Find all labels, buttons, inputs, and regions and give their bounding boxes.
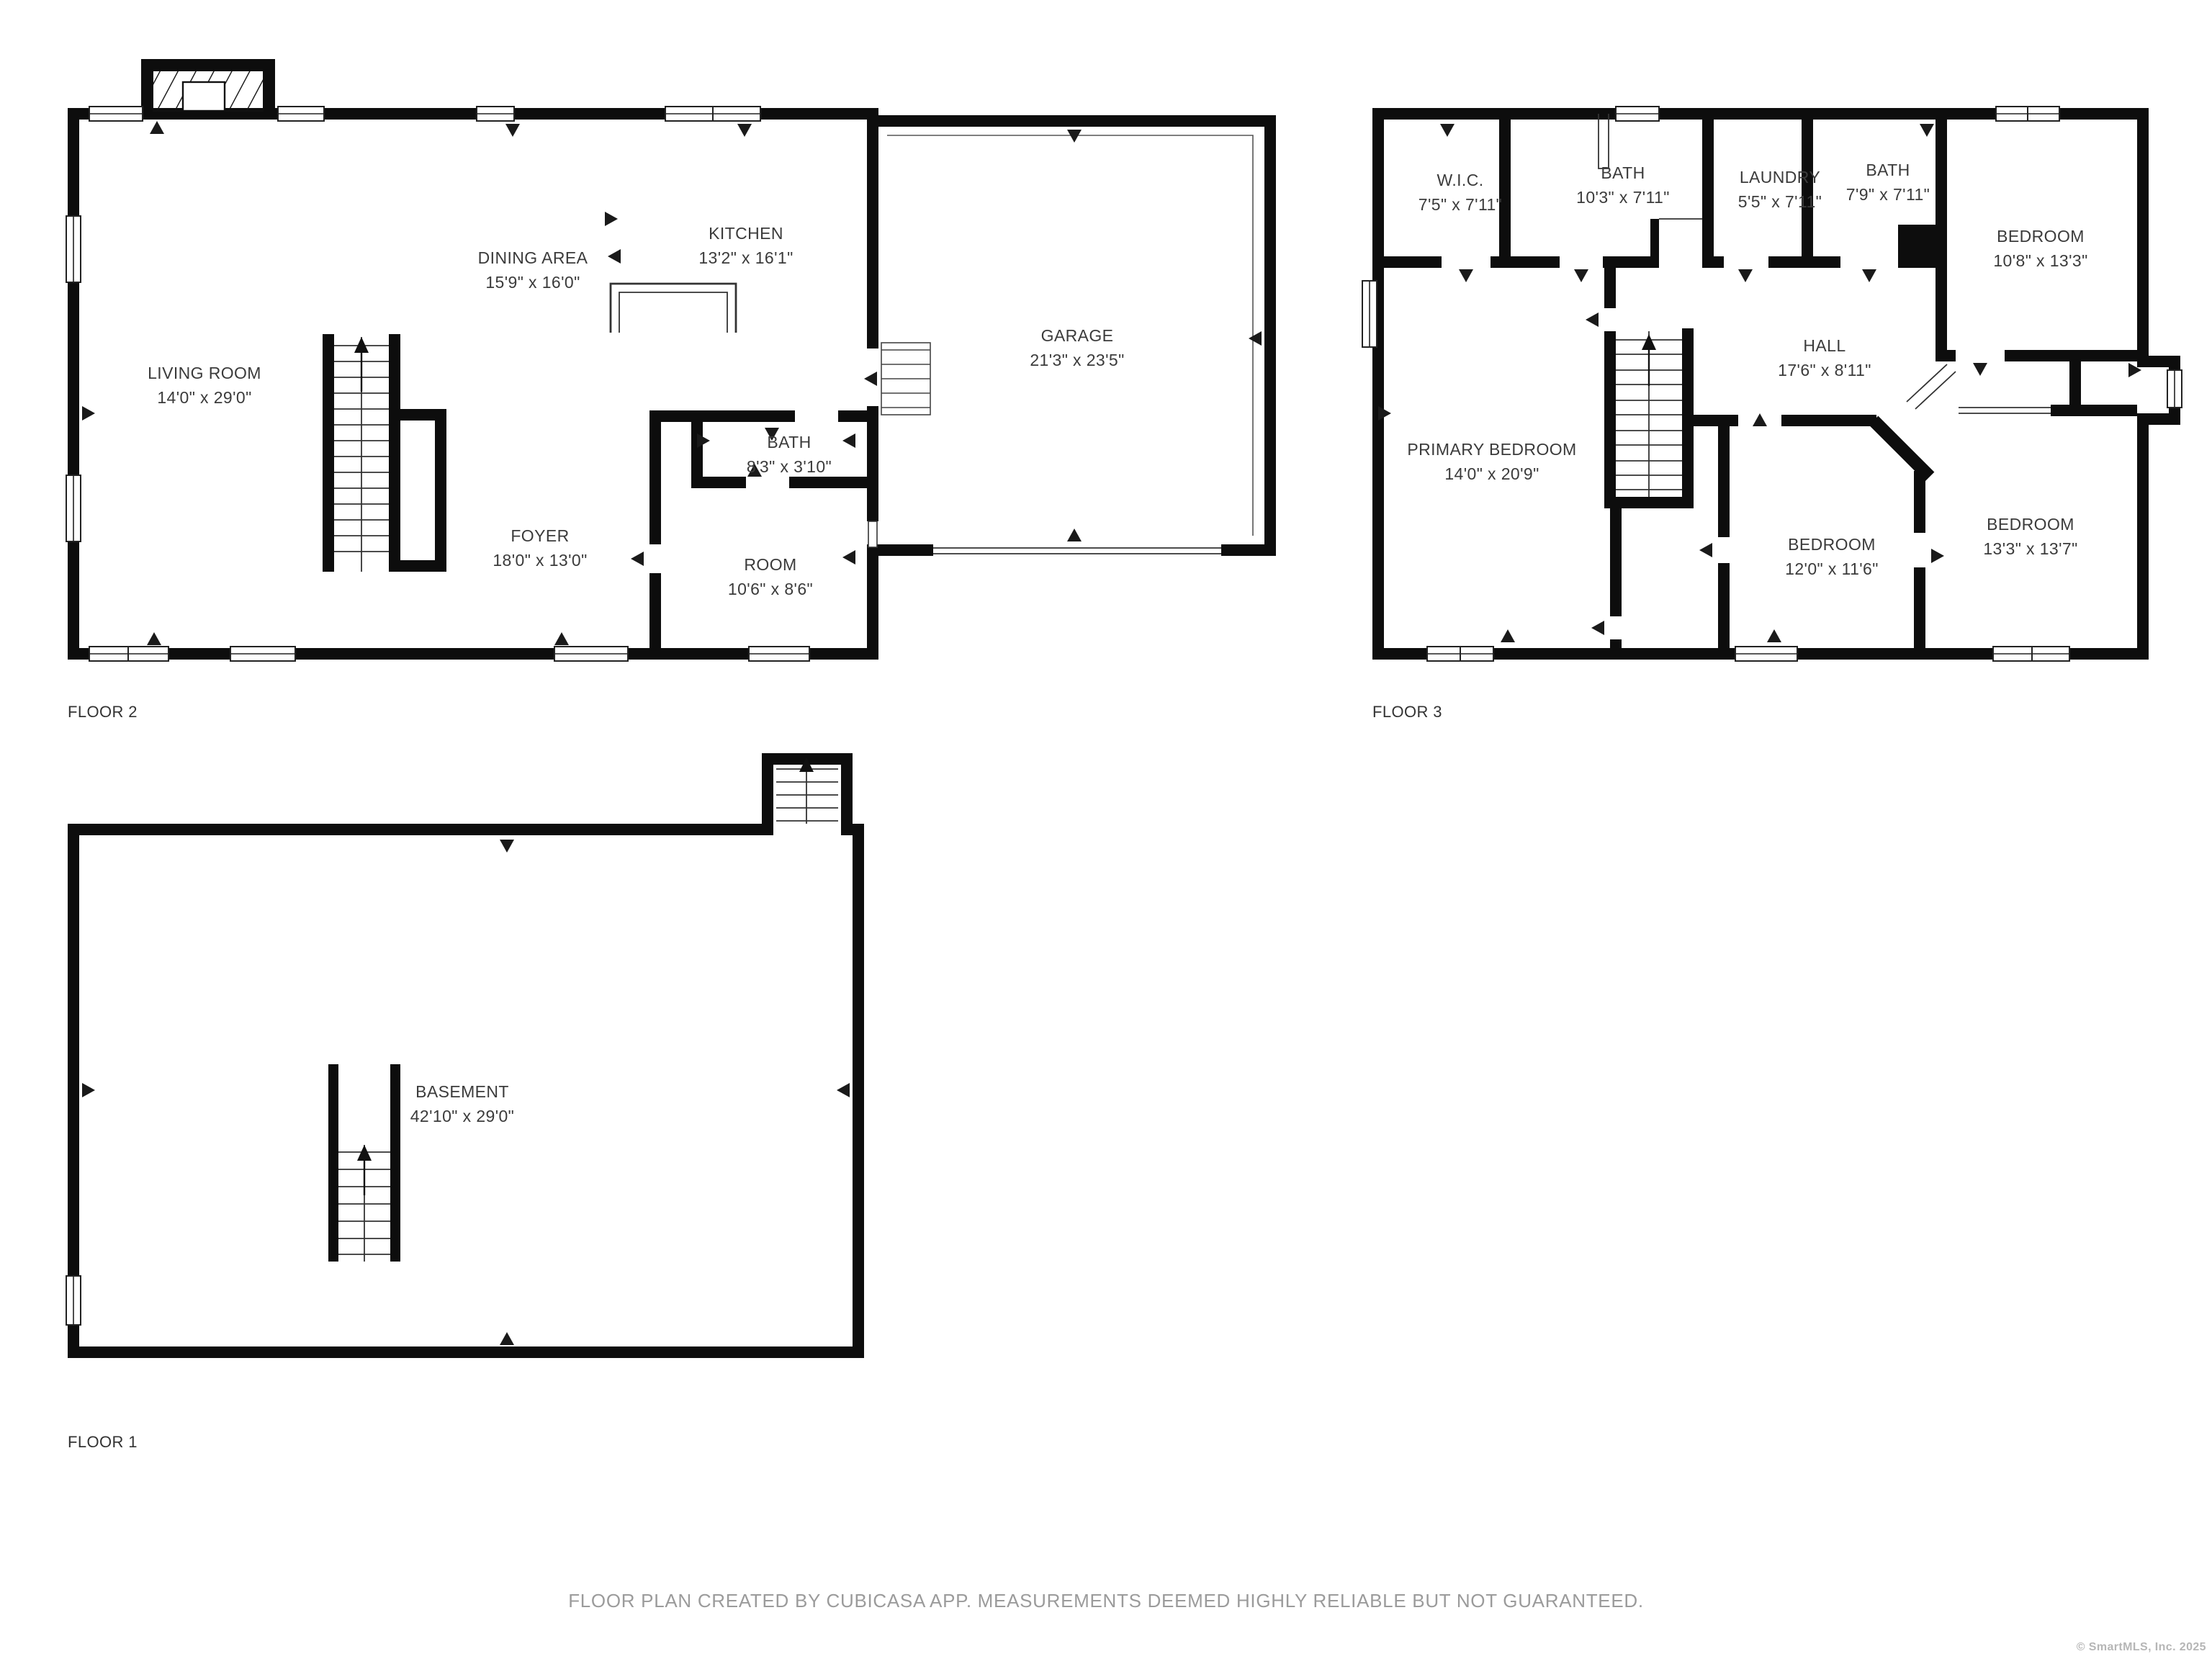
room-dims: 14'0" x 29'0": [148, 387, 261, 412]
room-dims: 10'6" x 8'6": [728, 579, 813, 603]
room-name: LAUNDRY: [1738, 167, 1822, 192]
room-name: KITCHEN: [698, 223, 793, 248]
floor1-window: [66, 1276, 81, 1325]
room-label-bedroom-middle: BEDROOM 12'0" x 11'6": [1785, 534, 1879, 583]
room-label-bath-floor2: BATH 8'3" x 3'10": [747, 432, 832, 481]
room-label-bedroom-bottomright: BEDROOM 13'3" x 13'7": [1983, 514, 2077, 563]
room-label-bedroom-topright: BEDROOM 10'8" x 13'3": [1993, 226, 2087, 275]
room-dims: 13'3" x 13'7": [1983, 539, 2077, 563]
room-name: BASEMENT: [410, 1082, 515, 1106]
floorplan-canvas: LIVING ROOM 14'0" x 29'0" DINING AREA 15…: [0, 0, 2212, 1659]
room-label-bath2: BATH 7'9" x 7'11": [1846, 160, 1930, 209]
room-name: BATH: [1846, 160, 1930, 184]
room-name: DINING AREA: [478, 248, 588, 272]
room-dims: 15'9" x 16'0": [478, 272, 588, 297]
room-dims: 7'9" x 7'11": [1846, 184, 1930, 209]
room-name: FOYER: [493, 526, 587, 550]
room-name: BEDROOM: [1983, 514, 2077, 539]
footer-disclaimer: FLOOR PLAN CREATED BY CUBICASA APP. MEAS…: [0, 1590, 2212, 1611]
room-name: BEDROOM: [1993, 226, 2087, 251]
room-label-foyer: FOYER 18'0" x 13'0": [493, 526, 587, 575]
floor3-stairs-icon: [1616, 331, 1682, 497]
room-dims: 12'0" x 11'6": [1785, 559, 1879, 583]
room-dims: 42'10" x 29'0": [410, 1106, 515, 1130]
room-label-bath-top: BATH 10'3" x 7'11": [1576, 163, 1670, 212]
floor1-walls: [68, 753, 864, 1358]
room-label-hall: HALL 17'6" x 8'11": [1778, 336, 1871, 385]
room-name: ROOM: [728, 554, 813, 579]
floor1-bump-stairs-icon: [776, 757, 838, 824]
room-dims: 10'8" x 13'3": [1993, 251, 2087, 275]
room-name: GARAGE: [1030, 325, 1124, 350]
room-dims: 14'0" x 20'9": [1407, 464, 1576, 488]
chimney-icon: [141, 59, 275, 120]
room-dims: 17'6" x 8'11": [1778, 360, 1871, 385]
room-label-room: ROOM 10'6" x 8'6": [728, 554, 813, 603]
floor2-stairs-icon: [323, 334, 400, 572]
room-name: W.I.C.: [1419, 170, 1502, 194]
room-name: BATH: [747, 432, 832, 457]
floor1-plan: [66, 753, 864, 1358]
room-label-dining-area: DINING AREA 15'9" x 16'0": [478, 248, 588, 297]
room-label-primary-bedroom: PRIMARY BEDROOM 14'0" x 20'9": [1407, 439, 1576, 488]
floor-label-3: FLOOR 3: [1372, 704, 1442, 721]
room-label-basement: BASEMENT 42'10" x 29'0": [410, 1082, 515, 1130]
room-name: BEDROOM: [1785, 534, 1879, 559]
room-dims: 13'2" x 16'1": [698, 248, 793, 272]
room-name: PRIMARY BEDROOM: [1407, 439, 1576, 464]
room-name: BATH: [1576, 163, 1670, 187]
room-dims: 7'5" x 7'11": [1419, 194, 1502, 219]
room-label-kitchen: KITCHEN 13'2" x 16'1": [698, 223, 793, 272]
room-dims: 8'3" x 3'10": [747, 457, 832, 481]
room-label-wic: W.I.C. 7'5" x 7'11": [1419, 170, 1502, 219]
room-label-garage: GARAGE 21'3" x 23'5": [1030, 325, 1124, 374]
room-name: HALL: [1778, 336, 1871, 360]
room-dims: 21'3" x 23'5": [1030, 350, 1124, 374]
room-label-living-room: LIVING ROOM 14'0" x 29'0": [148, 363, 261, 412]
floor-label-1: FLOOR 1: [68, 1434, 138, 1452]
room-dims: 5'5" x 7'11": [1738, 192, 1822, 216]
floor1-stairs-icon: [328, 1064, 400, 1262]
copyright: © SmartMLS, Inc. 2025: [2077, 1640, 2206, 1653]
floor3-diagonal-wall: [1874, 421, 1930, 477]
room-dims: 18'0" x 13'0": [493, 550, 587, 575]
room-name: LIVING ROOM: [148, 363, 261, 387]
floor-label-2: FLOOR 2: [68, 704, 138, 721]
room-label-laundry: LAUNDRY 5'5" x 7'11": [1738, 167, 1822, 216]
floorplan-drawing: [0, 0, 2212, 1659]
room-dims: 10'3" x 7'11": [1576, 187, 1670, 212]
floor3-angled-door: [1907, 364, 1956, 409]
kitchen-counter-icon: [611, 284, 736, 333]
